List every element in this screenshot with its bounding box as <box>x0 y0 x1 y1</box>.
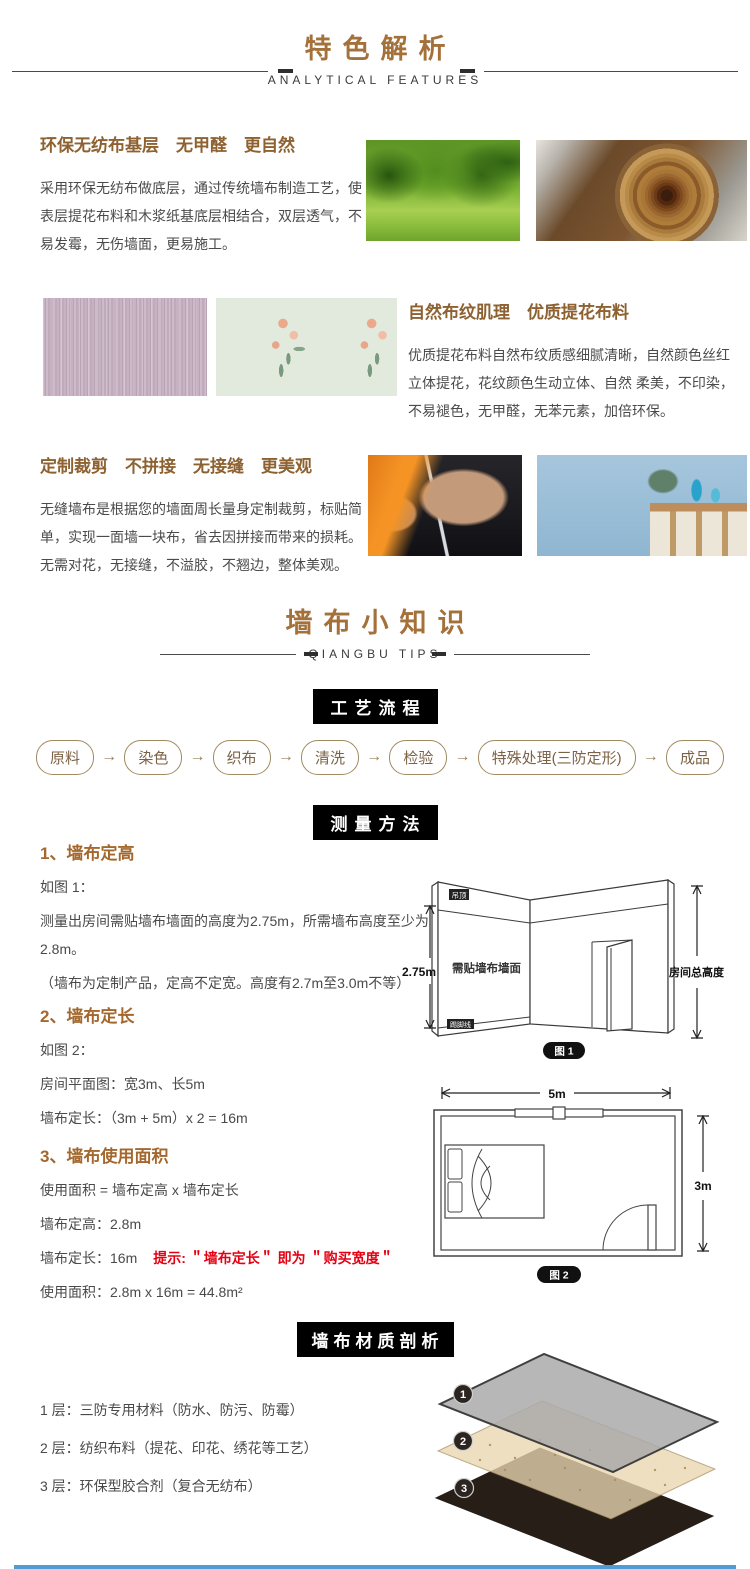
flow-step: 清洗 <box>301 740 359 775</box>
flow-step: 检验 <box>389 740 447 775</box>
decorative-rule <box>304 652 318 656</box>
fig2-caption: 图 2 <box>549 1270 568 1282</box>
figure-2-floorplan-diagram: 5m 3m 图 2 <box>420 1076 750 1288</box>
feature-3-body: 无缝墙布是根据您的墙面周长量身定制裁剪，标贴简单，实现一面墙一块布，省去因拼接而… <box>40 495 366 579</box>
decorative-rule <box>432 652 446 656</box>
features-header: 特色解析 ANALYTICAL FEATURES <box>0 27 750 87</box>
fig2-width-value: 5m <box>548 1087 565 1101</box>
measure-section-1: 1、墙布定高 如图 1： 测量出房间需贴墙布墙面的高度为2.75m，所需墙布高度… <box>40 839 434 1003</box>
flow-arrow-icon: → <box>642 748 660 766</box>
layer-3-badge: 3 <box>461 1483 467 1495</box>
fig1-wall-label: 需贴墙布墙面 <box>452 961 521 975</box>
measure-3-length: 墙布定长：16m提示: ＂墙布定长＂ 即为 ＂购买宽度＂ <box>40 1244 460 1272</box>
decorative-rule <box>454 654 590 655</box>
measure-section-2: 2、墙布定长 如图 2： 房间平面图：宽3m、长5m 墙布定长：（3m + 5m… <box>40 1002 434 1138</box>
features-header-subtitle: ANALYTICAL FEATURES <box>0 73 750 87</box>
measure-3-height: 墙布定高：2.8m <box>40 1210 460 1238</box>
decorative-rule <box>484 71 738 72</box>
flow-arrow-icon: → <box>100 748 118 766</box>
decorative-rule <box>278 69 293 73</box>
measure-1-text: 测量出房间需贴墙布墙面的高度为2.75m，所需墙布高度至少为2.8m。 <box>40 907 434 963</box>
material-layer-2-text: 2 层：纺织布料（提花、印花、绣花等工艺） <box>40 1438 318 1458</box>
material-layer-1-text: 1 层：三防专用材料（防水、防污、防霉） <box>40 1400 318 1420</box>
measure-2-intro: 如图 2： <box>40 1036 434 1064</box>
material-layers-list: 1 层：三防专用材料（防水、防污、防霉） 2 层：纺织布料（提花、印花、绣花等工… <box>40 1400 318 1514</box>
fabric-cutting-photo <box>368 455 522 556</box>
feature-2-body: 优质提花布料自然布纹质感细腻清晰，自然颜色丝红立体提花，花纹颜色生动立体、自然 … <box>408 341 742 425</box>
measure-section-3: 3、墙布使用面积 使用面积 = 墙布定高 x 墙布定长 墙布定高：2.8m 墙布… <box>40 1142 460 1312</box>
measure-2-formula: 墙布定长：（3m + 5m）x 2 = 16m <box>40 1104 434 1132</box>
process-flow: 原料 → 染色 → 织布 → 清洗 → 检验 → 特殊处理(三防定形) → 成品 <box>36 739 724 775</box>
decorative-rule <box>460 69 475 73</box>
product-detail-page: 特色解析 ANALYTICAL FEATURES 环保无纺布基层 无甲醛 更自然… <box>0 0 750 1569</box>
measure-2-text: 房间平面图：宽3m、长5m <box>40 1070 434 1098</box>
feature-1-body: 采用环保无纺布做底层，通过传统墙布制造工艺，使表层提花布料和木浆纸基底层相结合，… <box>40 174 366 258</box>
measure-3-length-value: 墙布定长：16m <box>40 1250 137 1266</box>
fig1-ceiling-label: 吊顶 <box>452 891 467 900</box>
flow-step: 原料 <box>36 740 94 775</box>
room-interior-photo <box>537 455 747 556</box>
flow-arrow-icon: → <box>453 748 471 766</box>
bottom-divider <box>14 1565 736 1569</box>
feature-2-title: 自然布纹肌理 优质提花布料 <box>408 298 629 323</box>
feature-3-title: 定制裁剪 不拼接 无接缝 更美观 <box>40 452 312 477</box>
green-trees-photo <box>366 140 520 241</box>
measure-3-title: 3、墙布使用面积 <box>40 1142 460 1167</box>
measure-1-title: 1、墙布定高 <box>40 839 434 864</box>
fig1-height-value: 2.75m <box>402 965 436 979</box>
measure-1-intro: 如图 1： <box>40 873 434 901</box>
process-header-label: 工艺流程 <box>313 689 438 724</box>
flow-step: 特殊处理(三防定形) <box>478 740 636 775</box>
purple-fabric-texture-photo <box>43 298 207 396</box>
tips-header-subtitle: QIANGBU TIPS <box>0 647 750 661</box>
process-header-box: 工艺流程 <box>0 689 750 724</box>
measure-3-area: 使用面积：2.8m x 16m = 44.8m² <box>40 1278 460 1306</box>
floral-fabric-pattern-photo <box>216 298 397 396</box>
fig1-caption: 图 1 <box>554 1046 573 1058</box>
layer-2-badge: 2 <box>460 1436 466 1448</box>
features-header-title: 特色解析 <box>0 27 750 66</box>
material-layers-diagram: 1 2 3 <box>420 1350 750 1566</box>
measure-1-note: （墙布为定制产品，定高不定宽。高度有2.7m至3.0m不等） <box>40 969 434 997</box>
decorative-rule <box>160 654 296 655</box>
flow-arrow-icon: → <box>365 748 383 766</box>
decorative-rule <box>12 71 268 72</box>
measure-3-formula: 使用面积 = 墙布定高 x 墙布定长 <box>40 1176 460 1204</box>
figure-1-wall-diagram: 吊顶 踢脚线 需贴墙布墙面 2.75m 房间总高度 图 1 <box>400 860 750 1062</box>
flow-step: 成品 <box>666 740 724 775</box>
measure-header-box: 测量方法 <box>0 805 750 840</box>
fig2-depth-value: 3m <box>694 1179 711 1193</box>
flow-arrow-icon: → <box>277 748 295 766</box>
wood-log-rings-photo <box>536 140 747 241</box>
measure-3-tip: 提示: ＂墙布定长＂ 即为 ＂购买宽度＂ <box>153 1250 393 1266</box>
fig1-skirting-label: 踢脚线 <box>450 1020 471 1029</box>
measure-2-title: 2、墙布定长 <box>40 1002 434 1027</box>
measure-header-label: 测量方法 <box>313 805 438 840</box>
flow-arrow-icon: → <box>189 748 207 766</box>
material-layer-3-text: 3 层：环保型胶合剂（复合无纺布） <box>40 1476 318 1496</box>
layer-1-badge: 1 <box>460 1389 466 1401</box>
flow-step: 织布 <box>213 740 271 775</box>
fig1-total-height-label: 房间总高度 <box>669 965 725 979</box>
feature-1-title: 环保无纺布基层 无甲醛 更自然 <box>40 131 295 156</box>
flow-step: 染色 <box>124 740 182 775</box>
tips-header-title: 墙布小知识 <box>0 601 750 640</box>
tips-header: 墙布小知识 QIANGBU TIPS <box>0 601 750 661</box>
